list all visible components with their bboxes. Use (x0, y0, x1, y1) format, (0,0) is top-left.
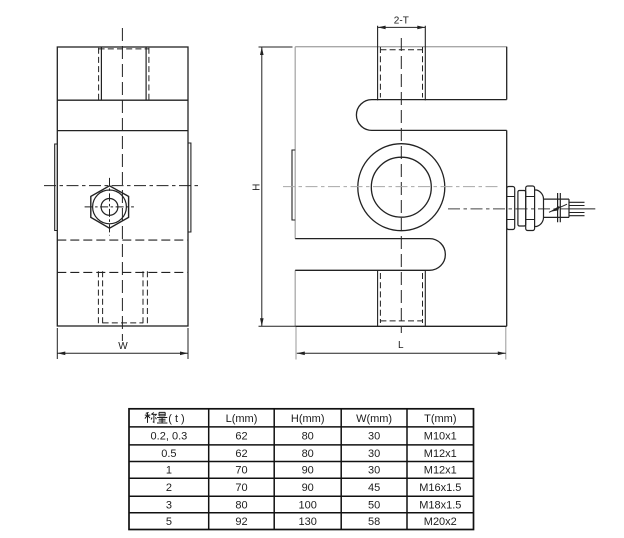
svg-text:0.5: 0.5 (161, 448, 176, 460)
svg-text:2-T: 2-T (394, 16, 409, 27)
svg-text:62: 62 (235, 448, 247, 460)
svg-text:0.2, 0.3: 0.2, 0.3 (151, 431, 188, 443)
svg-text:3: 3 (166, 499, 172, 511)
svg-text:M20x2: M20x2 (424, 516, 457, 528)
svg-text:62: 62 (235, 431, 247, 443)
svg-text:L(mm): L(mm) (226, 413, 258, 425)
svg-text:30: 30 (368, 431, 380, 443)
svg-text:T(mm): T(mm) (424, 413, 456, 425)
svg-text:80: 80 (302, 448, 314, 460)
svg-text:90: 90 (302, 465, 314, 477)
svg-text:M12x1: M12x1 (424, 448, 457, 460)
svg-text:M12x1: M12x1 (424, 465, 457, 477)
svg-text:80: 80 (235, 499, 247, 511)
svg-text:L: L (398, 340, 404, 351)
svg-text:H(mm): H(mm) (291, 413, 325, 425)
svg-text:70: 70 (235, 482, 247, 494)
svg-text:100: 100 (299, 499, 317, 511)
svg-text:130: 130 (299, 516, 317, 528)
svg-text:5: 5 (166, 516, 172, 528)
svg-text:H: H (251, 184, 262, 191)
svg-text:M18x1.5: M18x1.5 (419, 499, 461, 511)
svg-text:W: W (118, 341, 128, 352)
svg-text:1: 1 (166, 465, 172, 477)
svg-text:(t): (t) (168, 413, 187, 425)
svg-text:2: 2 (166, 482, 172, 494)
svg-text:58: 58 (368, 516, 380, 528)
svg-text:M16x1.5: M16x1.5 (419, 482, 461, 494)
svg-text:30: 30 (368, 448, 380, 460)
svg-text:92: 92 (235, 516, 247, 528)
svg-text:50: 50 (368, 499, 380, 511)
svg-text:M10x1: M10x1 (424, 431, 457, 443)
svg-text:45: 45 (368, 482, 380, 494)
svg-text:70: 70 (235, 465, 247, 477)
svg-text:90: 90 (302, 482, 314, 494)
svg-text:W(mm): W(mm) (356, 413, 392, 425)
svg-text:80: 80 (302, 431, 314, 443)
svg-text:30: 30 (368, 465, 380, 477)
